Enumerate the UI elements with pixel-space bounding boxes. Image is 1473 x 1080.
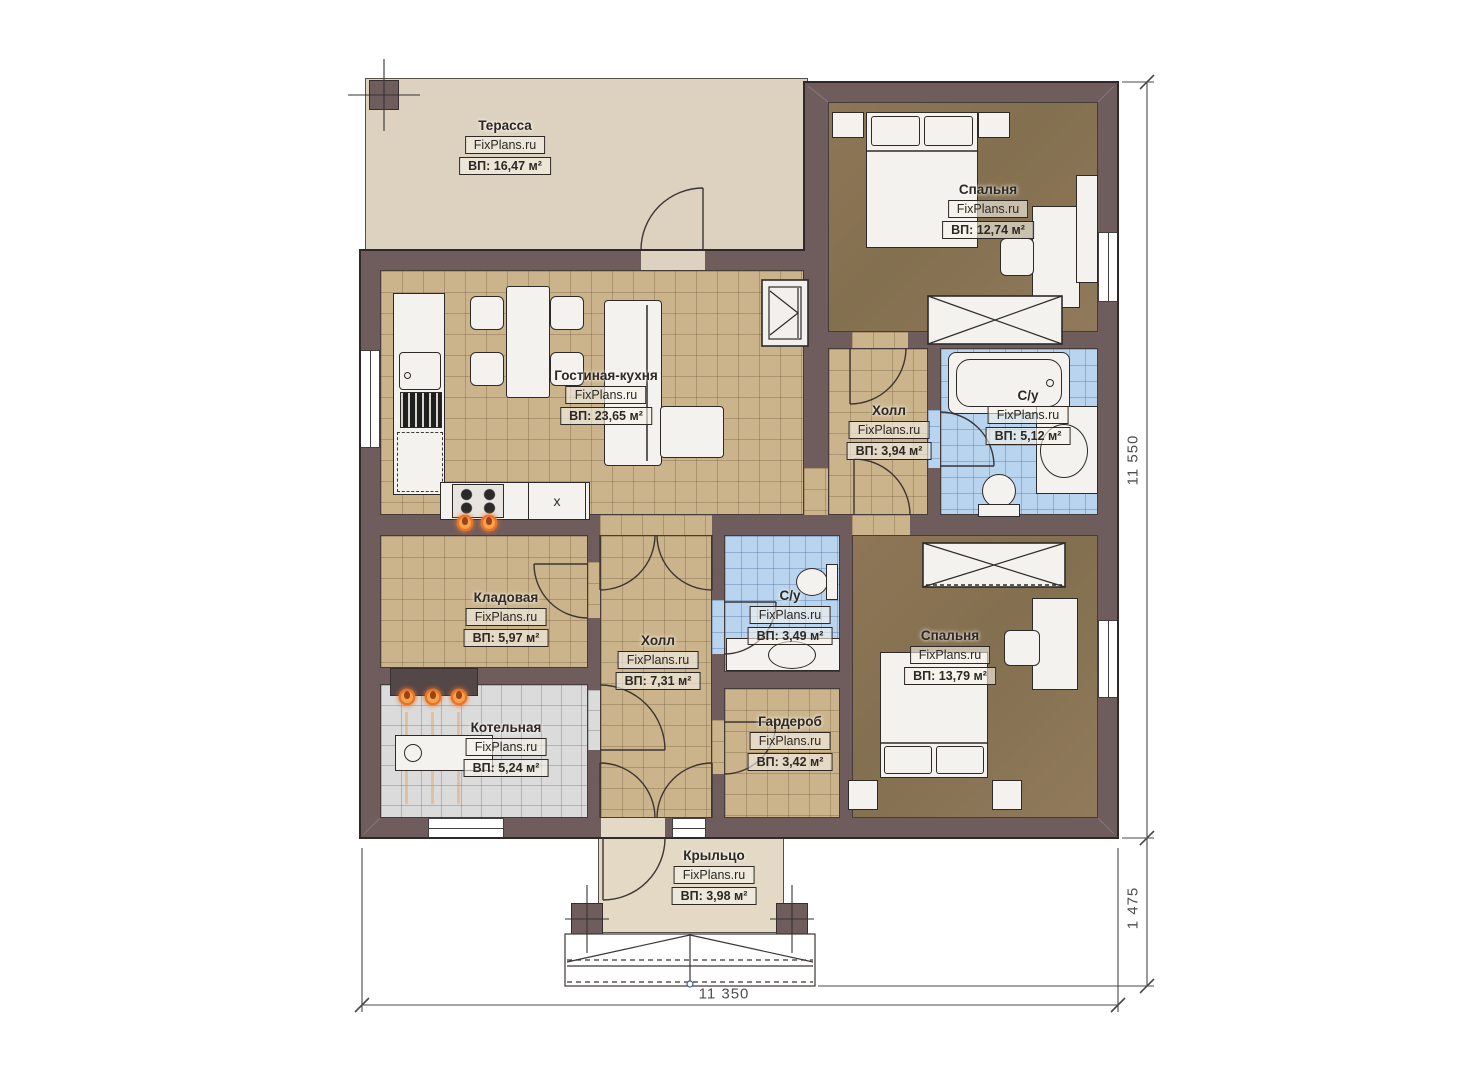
area-box: ВП: 16,47 м² xyxy=(459,157,551,175)
area-box: ВП: 3,94 м² xyxy=(847,442,932,460)
dim-porch-depth: 1 475 xyxy=(1125,887,1142,930)
floor-plan: x xyxy=(0,0,1473,1080)
room-label-bath2: С/у FixPlans.ru ВП: 3,49 м² xyxy=(748,588,833,645)
flame-icon xyxy=(480,514,498,532)
area-box: ВП: 5,24 м² xyxy=(464,759,549,777)
flame-icon xyxy=(450,688,468,706)
room-name: Гостиная-кухня xyxy=(554,368,657,383)
area-box: ВП: 3,42 м² xyxy=(748,753,833,771)
brand-box: FixPlans.ru xyxy=(849,421,930,439)
room-name: Спальня xyxy=(921,628,979,643)
room-label-boiler: Котельная FixPlans.ru ВП: 5,24 м² xyxy=(464,720,549,777)
brand-box: FixPlans.ru xyxy=(910,646,991,664)
room-name: Холл xyxy=(641,633,675,648)
brand-box: FixPlans.ru xyxy=(750,606,831,624)
area-box: ВП: 7,31 м² xyxy=(616,672,701,690)
area-box: ВП: 13,79 м² xyxy=(904,667,996,685)
vent-shaft xyxy=(762,280,808,346)
area-box: ВП: 5,12 м² xyxy=(986,427,1071,445)
room-name: Кладовая xyxy=(474,590,539,605)
room-label-wardrobe: Гардероб FixPlans.ru ВП: 3,42 м² xyxy=(748,714,833,771)
brand-box: FixPlans.ru xyxy=(466,738,547,756)
brand-box: FixPlans.ru xyxy=(948,200,1029,218)
area-box: ВП: 3,98 м² xyxy=(672,887,757,905)
area-box: ВП: 12,74 м² xyxy=(942,221,1034,239)
room-name: С/у xyxy=(1017,388,1038,403)
brand-box: FixPlans.ru xyxy=(465,136,546,154)
porch-steps xyxy=(565,934,815,987)
room-label-hall1: Холл FixPlans.ru ВП: 3,94 м² xyxy=(847,403,932,460)
flame-icon xyxy=(456,514,474,532)
brand-box: FixPlans.ru xyxy=(566,386,647,404)
room-name: Гардероб xyxy=(758,714,822,729)
room-name: Крыльцо xyxy=(683,848,744,863)
flame-icon xyxy=(424,688,442,706)
room-label-porch: Крыльцо FixPlans.ru ВП: 3,98 м² xyxy=(672,848,757,905)
brand-box: FixPlans.ru xyxy=(466,608,547,626)
room-name: С/у xyxy=(779,588,800,603)
brand-box: FixPlans.ru xyxy=(988,406,1069,424)
room-name: Холл xyxy=(872,403,906,418)
area-box: ВП: 23,65 м² xyxy=(560,407,652,425)
plan-linework xyxy=(0,0,1473,1080)
brand-box: FixPlans.ru xyxy=(674,866,755,884)
brand-box: FixPlans.ru xyxy=(750,732,831,750)
room-label-living: Гостиная-кухня FixPlans.ru ВП: 23,65 м² xyxy=(554,368,657,425)
brand-box: FixPlans.ru xyxy=(618,651,699,669)
area-box: ВП: 5,97 м² xyxy=(464,629,549,647)
room-name: Спальня xyxy=(959,182,1017,197)
column-crosshairs xyxy=(348,59,814,953)
room-label-bedroom2: Спальня FixPlans.ru ВП: 13,79 м² xyxy=(904,628,996,685)
room-label-bath1: С/у FixPlans.ru ВП: 5,12 м² xyxy=(986,388,1071,445)
room-label-terrace: Терасса FixPlans.ru ВП: 16,47 м² xyxy=(459,118,551,175)
dim-right-total: 11 550 xyxy=(1125,435,1142,486)
room-label-hall2: Холл FixPlans.ru ВП: 7,31 м² xyxy=(616,633,701,690)
dim-bottom-total: 11 350 xyxy=(699,986,750,1003)
area-box: ВП: 3,49 м² xyxy=(748,627,833,645)
room-name: Терасса xyxy=(478,118,532,133)
flame-icon xyxy=(398,688,416,706)
room-name: Котельная xyxy=(471,720,542,735)
room-label-pantry: Кладовая FixPlans.ru ВП: 5,97 м² xyxy=(464,590,549,647)
room-label-bedroom1: Спальня FixPlans.ru ВП: 12,74 м² xyxy=(942,182,1034,239)
